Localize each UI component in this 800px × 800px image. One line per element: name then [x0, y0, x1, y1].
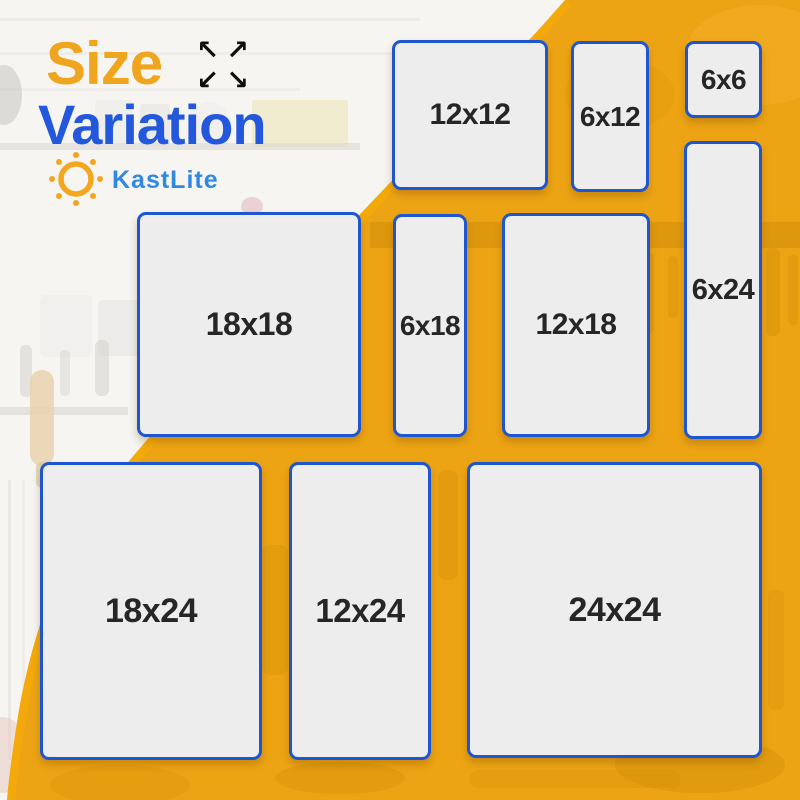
- size-panel-18x18: 18x18: [137, 212, 361, 437]
- size-panel-24x24: 24x24: [467, 462, 762, 758]
- size-label-6x6: 6x6: [701, 64, 746, 96]
- page-title-size: Size: [46, 34, 162, 94]
- sun-icon: [48, 151, 104, 207]
- size-label-12x24: 12x24: [315, 592, 404, 630]
- brand-name: KastLite: [112, 166, 219, 195]
- size-label-18x24: 18x24: [105, 592, 197, 631]
- size-label-6x12: 6x12: [580, 101, 640, 133]
- size-panel-6x18: 6x18: [393, 214, 467, 437]
- arrow-down-left-icon: ↙: [194, 67, 221, 94]
- size-panel-12x12: 12x12: [392, 40, 548, 190]
- brand-logo: KastLite: [48, 151, 308, 211]
- size-panel-6x24: 6x24: [684, 141, 762, 439]
- size-panel-12x18: 12x18: [502, 213, 650, 437]
- size-panel-18x24: 18x24: [40, 462, 262, 760]
- size-label-12x12: 12x12: [430, 98, 511, 132]
- size-variation-infographic: Size ↖ ↗ ↙ ↘ Variation KastLite 12x12 6x…: [0, 0, 800, 800]
- expand-arrows-icon: ↖ ↗ ↙ ↘: [194, 37, 251, 94]
- size-label-6x24: 6x24: [692, 274, 755, 307]
- arrow-down-right-icon: ↘: [224, 67, 251, 94]
- page-title-variation: Variation: [38, 97, 266, 153]
- size-panel-12x24: 12x24: [289, 462, 431, 760]
- size-panel-6x12: 6x12: [571, 41, 649, 192]
- size-panel-6x6: 6x6: [685, 41, 762, 118]
- size-label-12x18: 12x18: [536, 308, 617, 342]
- arrow-up-left-icon: ↖: [194, 37, 221, 64]
- size-label-24x24: 24x24: [568, 591, 660, 630]
- size-label-18x18: 18x18: [206, 306, 292, 343]
- arrow-up-right-icon: ↗: [224, 37, 251, 64]
- size-label-6x18: 6x18: [400, 310, 460, 342]
